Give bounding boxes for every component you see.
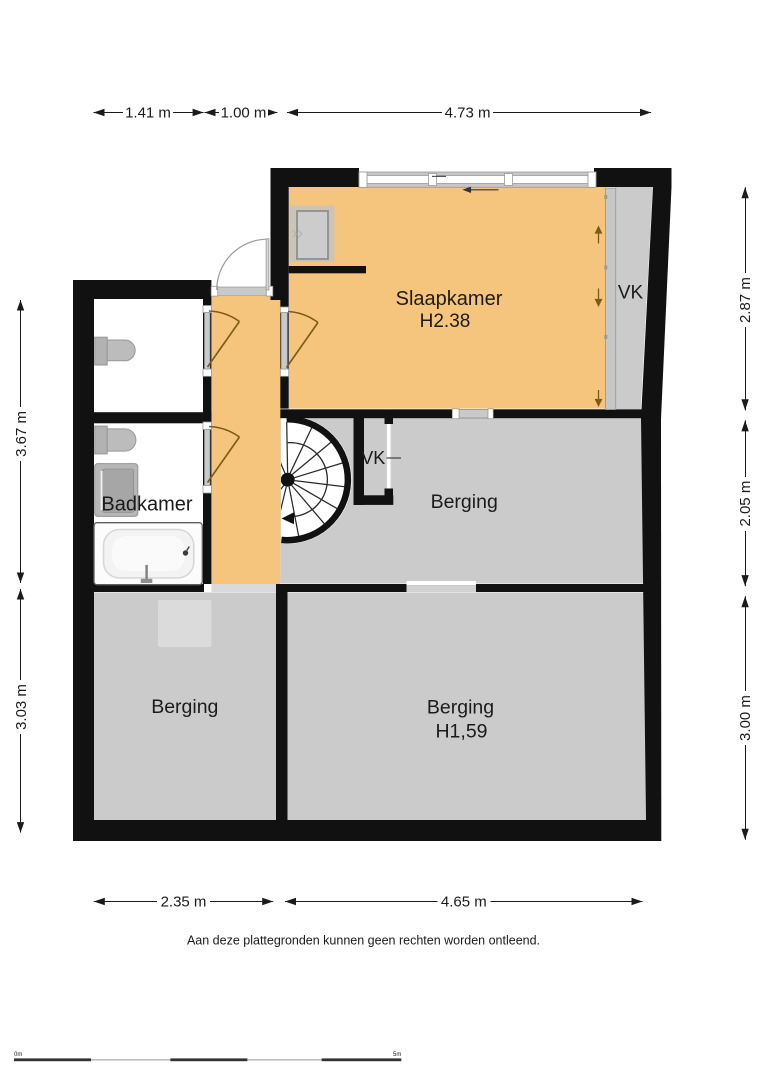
svg-text:Aan deze plattegronden kunnen: Aan deze plattegronden kunnen geen recht…	[187, 934, 540, 948]
svg-text:2.05 m: 2.05 m	[737, 481, 754, 527]
svg-text:0m: 0m	[14, 1052, 22, 1058]
svg-text:Berging: Berging	[427, 697, 494, 719]
svg-text:5m: 5m	[393, 1052, 401, 1058]
svg-text:3.03 m: 3.03 m	[13, 684, 30, 730]
svg-text:VK: VK	[618, 283, 644, 304]
svg-text:4.73 m: 4.73 m	[445, 104, 491, 121]
svg-text:Badkamer: Badkamer	[101, 494, 192, 516]
svg-text:1.00 m: 1.00 m	[221, 104, 267, 121]
svg-text:H2.38: H2.38	[420, 311, 471, 332]
svg-text:1.41 m: 1.41 m	[125, 104, 171, 121]
svg-text:Berging: Berging	[151, 696, 218, 718]
svg-text:3.00 m: 3.00 m	[737, 695, 754, 741]
svg-text:2.35 m: 2.35 m	[161, 894, 207, 911]
svg-text:Slaapkamer: Slaapkamer	[396, 288, 503, 310]
svg-text:H1,59: H1,59	[435, 721, 487, 743]
svg-text:Berging: Berging	[431, 491, 498, 513]
svg-text:4.65 m: 4.65 m	[441, 894, 487, 911]
svg-text:VK: VK	[361, 448, 385, 468]
svg-text:2.87 m: 2.87 m	[737, 277, 754, 323]
svg-text:3.67 m: 3.67 m	[13, 411, 30, 457]
